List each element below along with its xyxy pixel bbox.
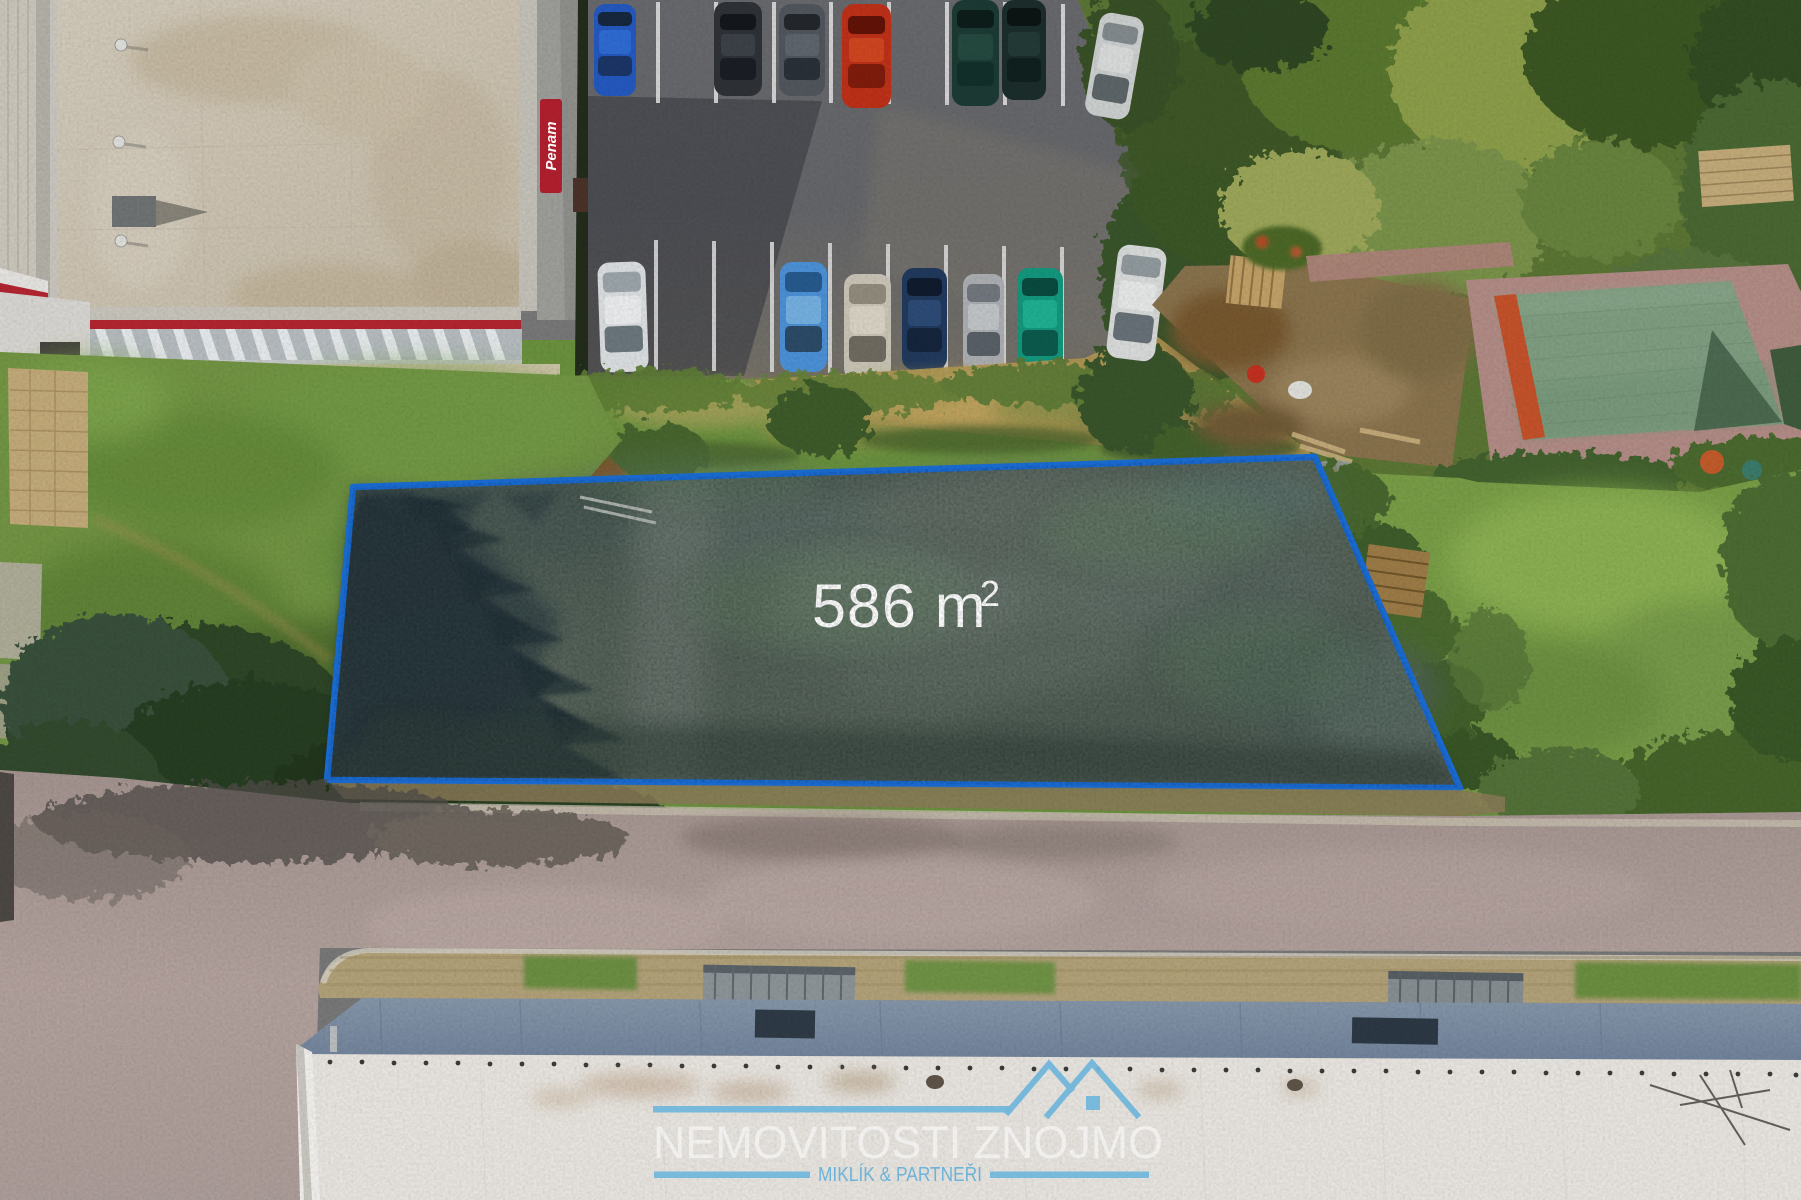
- svg-text:MIKLÍK & PARTNEŘI: MIKLÍK & PARTNEŘI: [818, 1163, 982, 1186]
- svg-text:NEMOVITOSTI ZNOJMO: NEMOVITOSTI ZNOJMO: [653, 1117, 1163, 1168]
